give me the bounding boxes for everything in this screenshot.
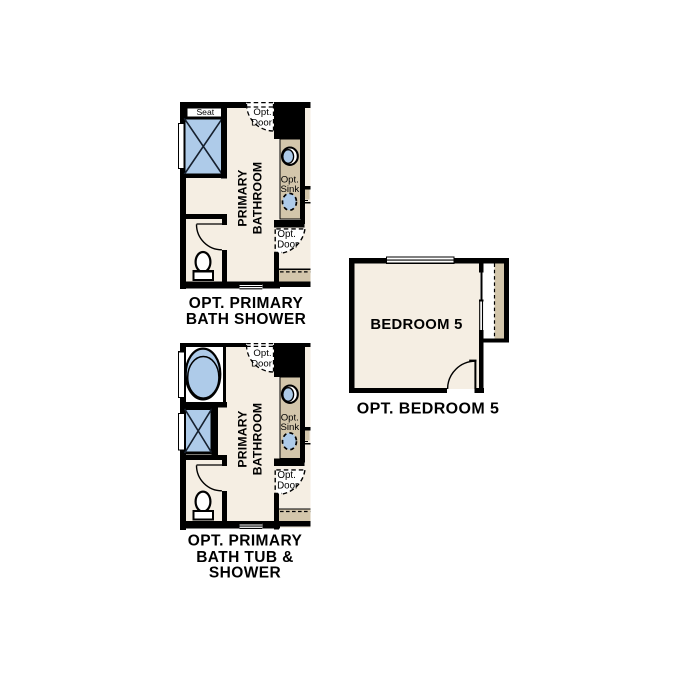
svg-text:Door: Door [251, 117, 273, 128]
svg-text:Seat: Seat [196, 107, 214, 117]
svg-text:Opt.: Opt. [277, 470, 296, 481]
svg-text:Door: Door [277, 480, 299, 491]
svg-text:OPT. PRIMARY: OPT. PRIMARY [189, 295, 304, 312]
svg-text:Door: Door [277, 239, 299, 250]
svg-text:PRIMARYBATHROOM: PRIMARYBATHROOM [236, 403, 265, 475]
svg-text:OPT. PRIMARY: OPT. PRIMARY [188, 533, 303, 550]
svg-text:BATH SHOWER: BATH SHOWER [186, 311, 306, 328]
svg-text:Door: Door [251, 358, 273, 369]
svg-text:OPT. BEDROOM 5: OPT. BEDROOM 5 [357, 400, 500, 417]
svg-text:PRIMARYBATHROOM: PRIMARYBATHROOM [236, 162, 265, 234]
svg-text:Sink: Sink [280, 422, 299, 433]
svg-text:Opt.: Opt. [277, 229, 296, 240]
svg-text:SHOWER: SHOWER [209, 564, 281, 581]
svg-text:BEDROOM 5: BEDROOM 5 [370, 317, 462, 333]
